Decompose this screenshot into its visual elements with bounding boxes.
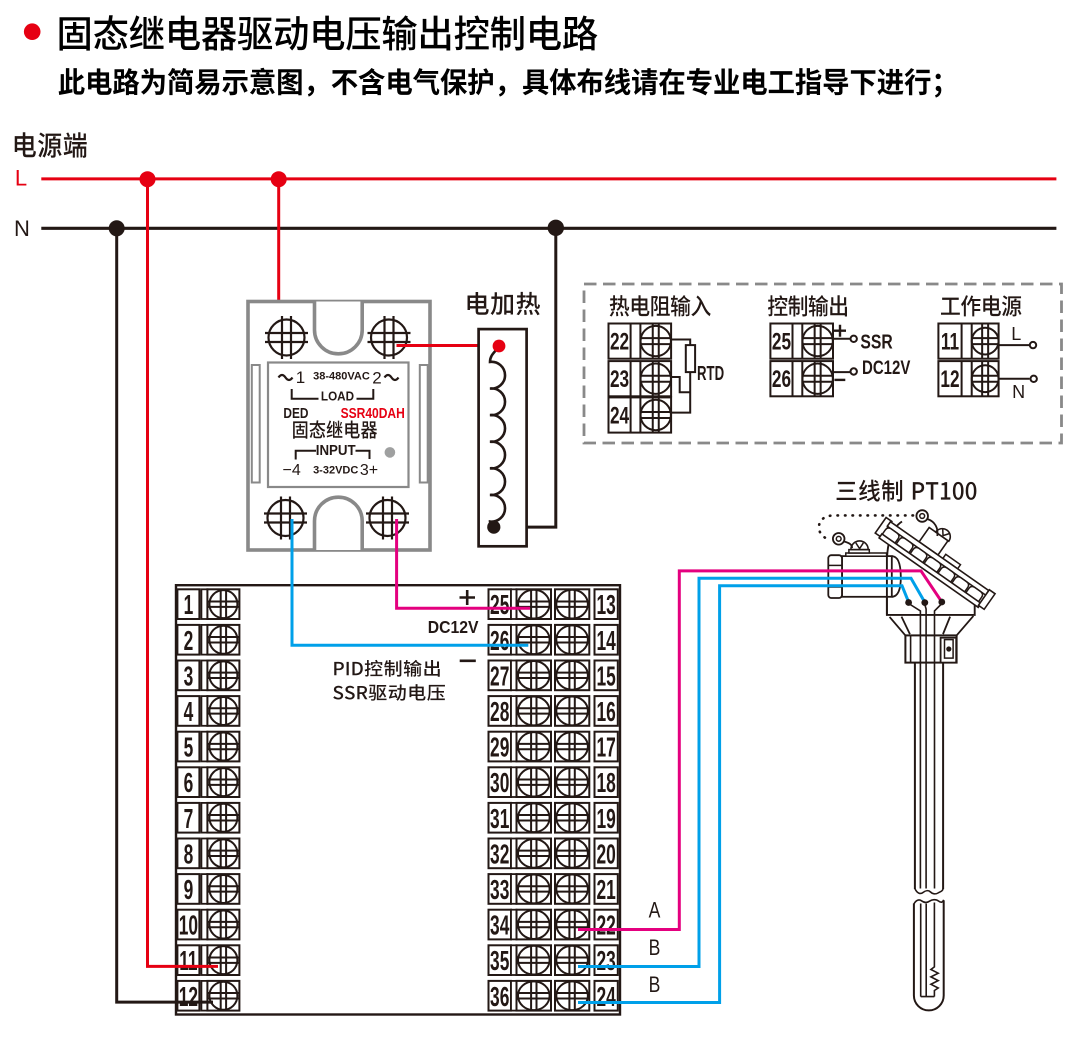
svg-text:−4: −4 <box>283 462 301 479</box>
svg-text:17: 17 <box>596 731 615 762</box>
svg-text:16: 16 <box>596 696 615 727</box>
svg-text:6: 6 <box>184 767 194 798</box>
svg-text:B: B <box>649 936 661 960</box>
svg-text:8: 8 <box>184 838 194 869</box>
svg-text:18: 18 <box>596 767 615 798</box>
svg-text:24: 24 <box>596 981 615 1012</box>
svg-text:2: 2 <box>184 625 194 656</box>
svg-text:DC12V: DC12V <box>862 357 911 378</box>
svg-text:38-480VAC: 38-480VAC <box>313 371 370 383</box>
svg-text:25: 25 <box>490 589 509 620</box>
svg-text:25: 25 <box>772 329 791 355</box>
svg-text:35: 35 <box>490 945 509 976</box>
svg-text:13: 13 <box>596 589 615 620</box>
svg-text:19: 19 <box>596 803 615 834</box>
svg-text:26: 26 <box>772 367 791 393</box>
svg-text:RTD: RTD <box>697 362 724 384</box>
svg-text:24: 24 <box>610 403 630 429</box>
svg-text:L: L <box>15 166 27 191</box>
svg-text:26: 26 <box>490 625 509 656</box>
svg-text:15: 15 <box>596 660 615 691</box>
svg-text:21: 21 <box>596 874 615 905</box>
svg-text:DED: DED <box>283 405 308 421</box>
svg-text:4: 4 <box>184 696 194 727</box>
svg-text:30: 30 <box>490 767 509 798</box>
svg-text:3-32VDC: 3-32VDC <box>313 464 358 476</box>
svg-text:10: 10 <box>179 909 198 940</box>
svg-text:29: 29 <box>490 731 509 762</box>
svg-text:11: 11 <box>941 329 959 355</box>
svg-text:34: 34 <box>490 909 509 940</box>
svg-text:20: 20 <box>596 838 615 869</box>
svg-text:23: 23 <box>596 945 615 976</box>
svg-text:27: 27 <box>490 660 509 691</box>
svg-text:SSR40DAH: SSR40DAH <box>341 405 405 421</box>
svg-text:B: B <box>649 973 661 997</box>
svg-text:9: 9 <box>184 874 194 905</box>
svg-text:32: 32 <box>490 838 509 869</box>
svg-text:36: 36 <box>490 981 509 1012</box>
svg-text:5: 5 <box>184 731 194 762</box>
svg-text:N: N <box>1012 382 1025 402</box>
svg-text:33: 33 <box>490 874 509 905</box>
svg-text:N: N <box>14 216 30 241</box>
svg-text:12: 12 <box>179 981 198 1012</box>
svg-text:1: 1 <box>296 368 305 387</box>
svg-text:A: A <box>649 899 661 923</box>
svg-text:1: 1 <box>184 589 194 620</box>
svg-text:LOAD: LOAD <box>321 389 354 404</box>
svg-text:31: 31 <box>490 803 509 834</box>
svg-text:2: 2 <box>372 369 381 388</box>
svg-text:SSR: SSR <box>860 330 892 352</box>
svg-text:28: 28 <box>490 696 509 727</box>
svg-text:22: 22 <box>610 329 629 355</box>
svg-text:3+: 3+ <box>360 462 378 479</box>
svg-text:11: 11 <box>179 945 197 976</box>
svg-text:12: 12 <box>940 367 959 393</box>
svg-text:23: 23 <box>610 367 629 393</box>
svg-text:22: 22 <box>596 909 615 940</box>
svg-text:14: 14 <box>596 625 615 656</box>
svg-text:DC12V: DC12V <box>428 617 479 637</box>
svg-text:INPUT: INPUT <box>316 441 356 458</box>
svg-text:L: L <box>1011 324 1021 344</box>
svg-text:7: 7 <box>184 803 194 834</box>
svg-text:3: 3 <box>184 660 194 691</box>
